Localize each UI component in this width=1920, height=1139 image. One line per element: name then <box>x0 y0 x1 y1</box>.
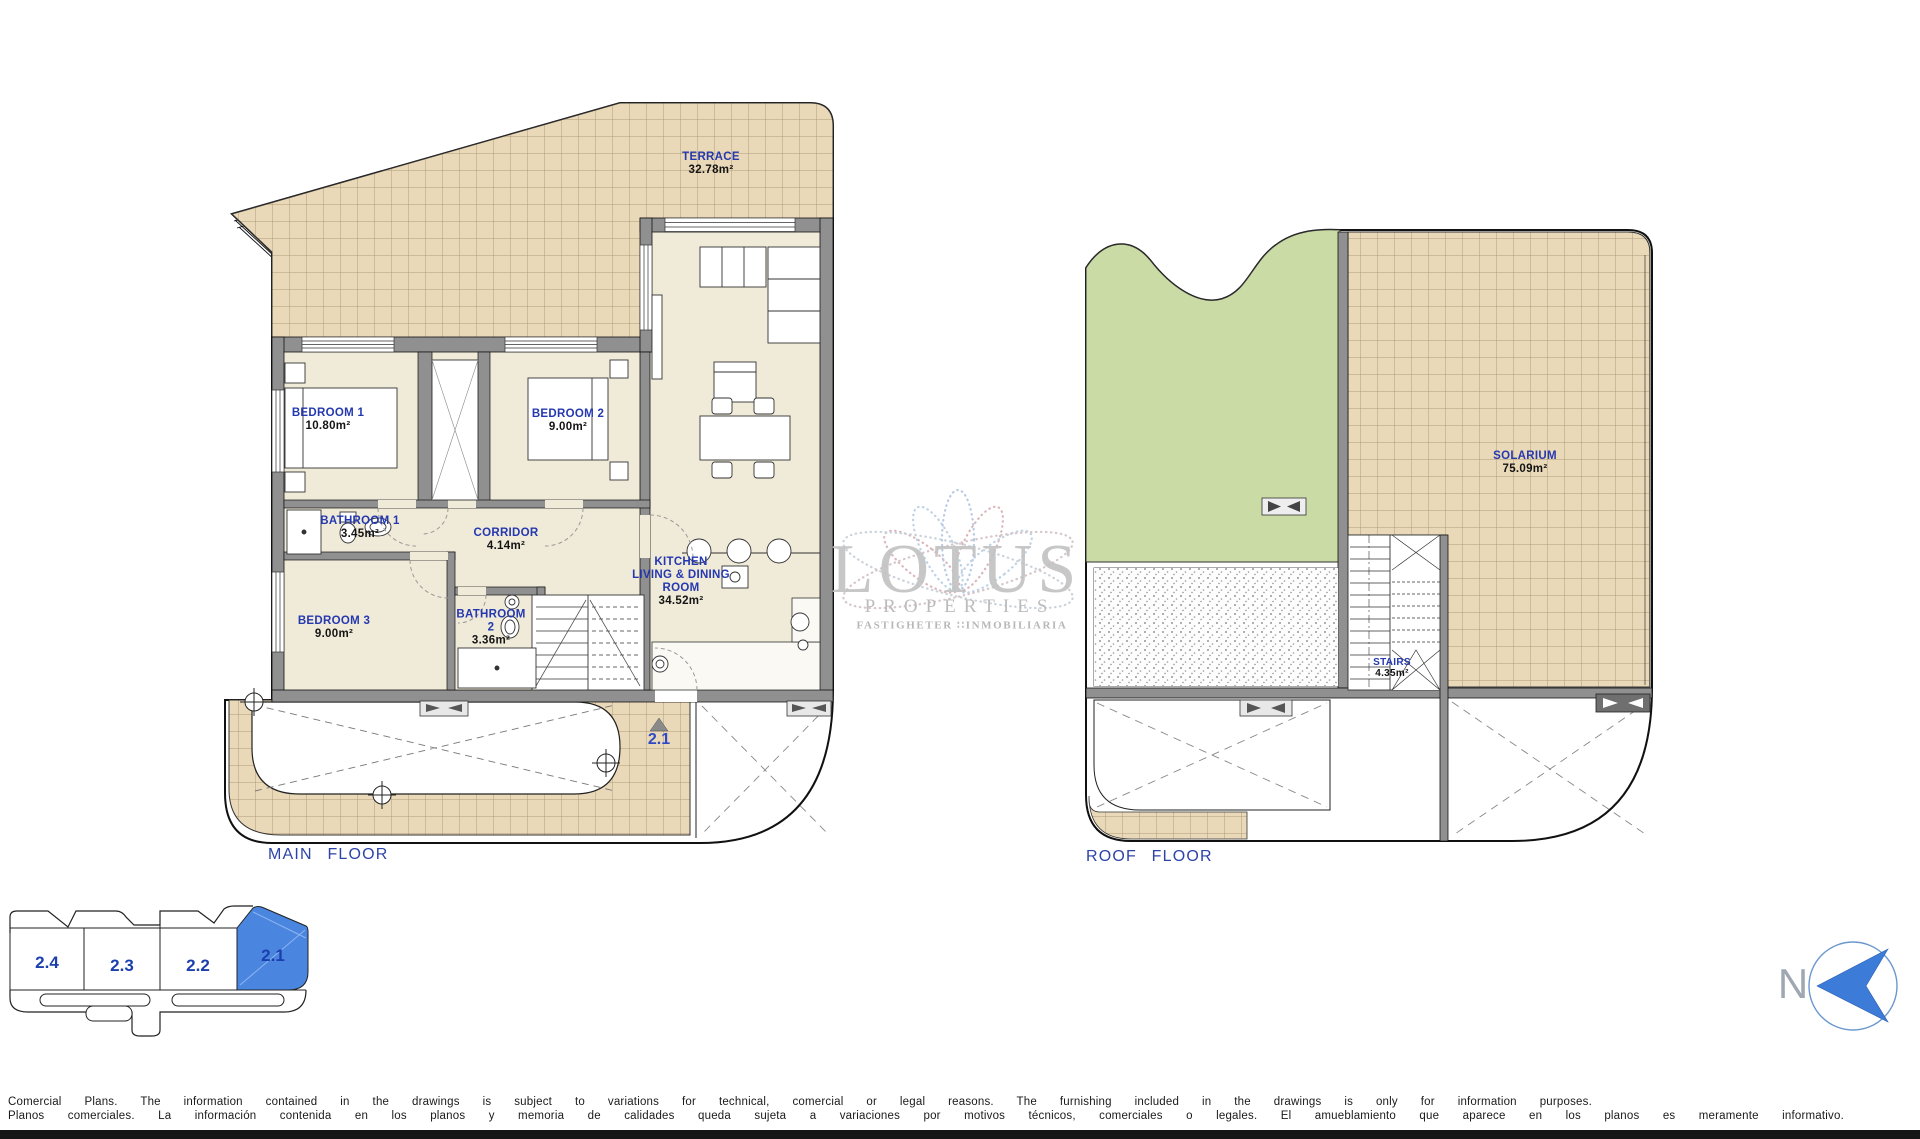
unit-key-label-2-3: 2.3 <box>110 956 134 976</box>
unit-key-label-2-1-selected: 2.1 <box>261 946 285 966</box>
unit-key-label-2-2: 2.2 <box>186 956 210 976</box>
disclaimer-english: Comercial Plans. The information contain… <box>8 1096 1592 1108</box>
room-label-bathroom2: BATHROOM 2 3.36m² <box>456 609 525 648</box>
room-label-kitchen-living: KITCHEN LIVING & DINING ROOM 34.52m² <box>632 556 730 608</box>
room-label-stairs: STAIRS 4.35m² <box>1373 657 1411 679</box>
stairs-main <box>532 595 644 690</box>
room-label-bedroom2: BEDROOM 2 9.00m² <box>532 408 604 434</box>
room-label-bathroom1: BATHROOM 1 3.45m² <box>320 515 399 541</box>
watermark-tagline: FASTIGHETER ∷INMOBILIARIA <box>857 619 1068 632</box>
bottom-bar <box>0 1130 1920 1139</box>
roof-floor-plan <box>1086 230 1652 841</box>
compass-north-label: N <box>1778 960 1808 1008</box>
room-label-terrace: TERRACE 32.78m² <box>682 151 740 177</box>
entrance-unit-label: 2.1 <box>648 731 670 749</box>
roof-floor-title: ROOF FLOOR <box>1086 848 1213 866</box>
main-floor-title: MAIN FLOOR <box>268 846 389 864</box>
disclaimer-spanish: Planos comerciales. La información conte… <box>8 1110 1844 1122</box>
north-compass <box>1809 942 1897 1030</box>
room-label-solarium: SOLARIUM 75.09m² <box>1493 450 1557 476</box>
main-floor-plan <box>225 103 833 843</box>
room-label-bedroom1: BEDROOM 1 10.80m² <box>292 407 364 433</box>
room-label-corridor: CORRIDOR 4.14m² <box>473 527 538 553</box>
unit-key-label-2-4: 2.4 <box>35 953 59 973</box>
watermark-subtitle: PROPERTIES <box>865 596 1056 618</box>
plan-sheet: TERRACE 32.78m² BEDROOM 1 10.80m² BEDROO… <box>0 0 1920 1139</box>
room-label-bedroom3: BEDROOM 3 9.00m² <box>298 615 370 641</box>
